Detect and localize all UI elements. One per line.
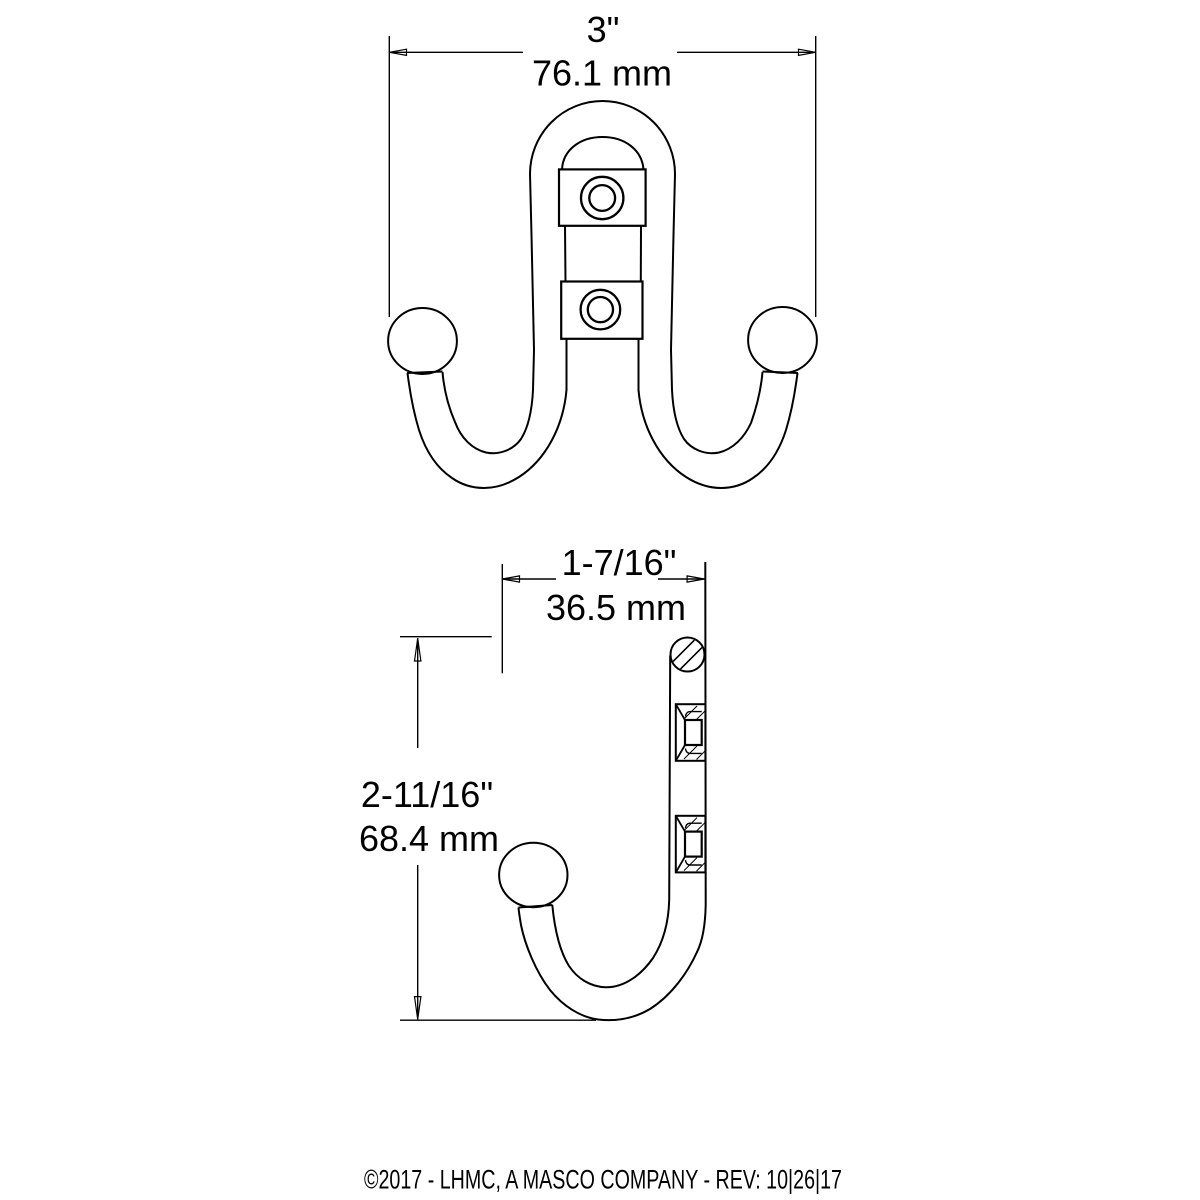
svg-text:68.4 mm: 68.4 mm	[359, 818, 499, 859]
svg-text:1-7/16": 1-7/16"	[562, 542, 677, 583]
svg-text:©2017 - LHMC, A MASCO COMPANY: ©2017 - LHMC, A MASCO COMPANY - REV: 10|…	[364, 1164, 842, 1194]
svg-text:3": 3"	[587, 9, 620, 50]
svg-text:2-11/16": 2-11/16"	[361, 774, 493, 815]
svg-text:36.5 mm: 36.5 mm	[546, 587, 686, 628]
svg-text:76.1 mm: 76.1 mm	[532, 53, 672, 94]
